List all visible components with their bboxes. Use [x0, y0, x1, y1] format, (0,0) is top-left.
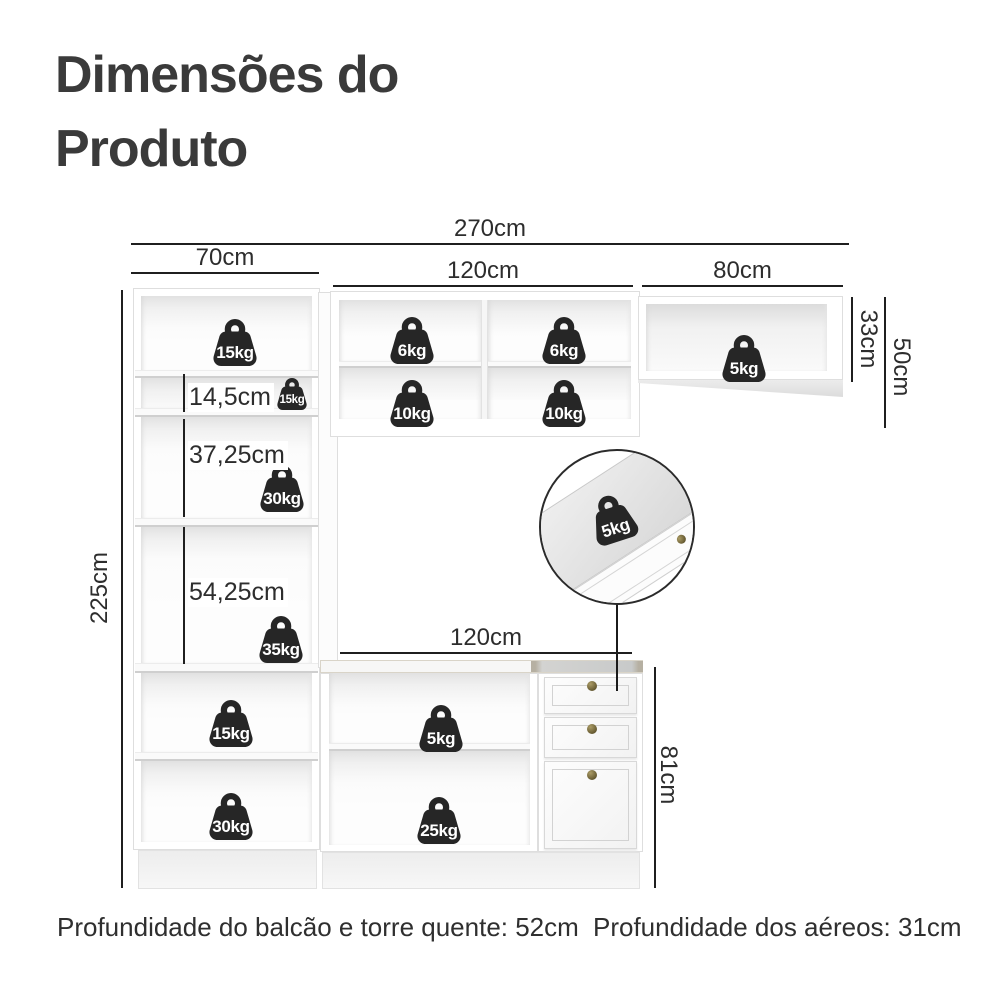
- dim-label-aerial-width: 120cm: [447, 257, 519, 285]
- weight-label: 10kg: [535, 404, 593, 424]
- dim-label-counter-width: 120cm: [450, 624, 522, 652]
- dim-label-tower-height: 225cm: [86, 552, 114, 624]
- weight-badge: 15kg: [272, 378, 312, 412]
- weight-badge: 5kg: [412, 705, 470, 755]
- dim-line-counter-width: 120cm: [340, 652, 632, 654]
- weight-label: 15kg: [206, 343, 264, 363]
- depth-note-aerials: Profundidade dos aéreos: 31cm: [593, 912, 962, 943]
- dim-line-tower-height: [121, 290, 123, 888]
- tower-shelf: [135, 370, 318, 378]
- weight-badge: 15kg: [202, 700, 260, 750]
- page-title-line1: Dimensões do: [55, 38, 398, 112]
- dim-label-shelf-gap-small: 14,5cm: [188, 383, 274, 412]
- dim-label-tower-width: 70cm: [196, 244, 255, 272]
- drawer-2-knob: [587, 724, 597, 734]
- weight-label: 15kg: [272, 394, 312, 406]
- dim-line-right-aerial-width: 80cm: [642, 285, 843, 287]
- counter-plinth: [322, 852, 640, 889]
- weight-label: 15kg: [202, 724, 260, 744]
- aerial-divider: [481, 300, 488, 419]
- weight-label: 6kg: [383, 341, 441, 361]
- weight-badge: 35kg: [252, 616, 310, 666]
- dim-label-shelf-gap-large: 54,25cm: [188, 578, 288, 607]
- weight-label: 5kg: [412, 729, 470, 749]
- page-title: Dimensões do Produto: [55, 38, 398, 186]
- dim-label-total-width: 270cm: [454, 215, 526, 243]
- weight-badge: 25kg: [410, 797, 468, 847]
- weight-label: 35kg: [252, 640, 310, 660]
- dim-label-counter-height: 81cm: [654, 746, 682, 805]
- dim-label-right-aerial-width: 80cm: [713, 257, 772, 285]
- weight-badge: 10kg: [535, 380, 593, 430]
- dim-tick-shelf-gap-mid: [183, 419, 185, 517]
- weight-badge: 30kg: [202, 793, 260, 843]
- weight-label: 5kg: [715, 359, 773, 379]
- countertop-stone-recess: [531, 661, 643, 672]
- depth-note-counter: Profundidade do balcão e torre quente: 5…: [57, 912, 579, 943]
- weight-badge: 15kg: [206, 319, 264, 369]
- tower-shelf: [135, 752, 318, 761]
- dim-tick-shelf-gap-large: [183, 527, 185, 664]
- drawer-3-knob: [587, 770, 597, 780]
- tower-shelf: [135, 518, 318, 527]
- dim-label-right-aerial-total-height: 50cm: [887, 338, 915, 397]
- drawer-detail-circle: 5kg: [539, 449, 695, 605]
- product-dimensions-infographic: Dimensões do Produto: [0, 0, 1000, 1000]
- weight-label: 6kg: [535, 341, 593, 361]
- detail-connector-line: [616, 604, 618, 691]
- dim-line-tower-width: 70cm: [131, 272, 319, 274]
- dim-label-right-aerial-height: 33cm: [854, 310, 882, 369]
- weight-label: 30kg: [202, 817, 260, 837]
- weight-badge: 5kg: [715, 335, 773, 385]
- dim-tick-shelf-gap-small: [183, 374, 185, 412]
- weight-label: 10kg: [383, 404, 441, 424]
- weight-badge: 30kg: [253, 465, 311, 515]
- weight-label: 25kg: [410, 821, 468, 841]
- weight-label: 30kg: [253, 489, 311, 509]
- dim-label-shelf-gap-mid: 37,25cm: [188, 441, 288, 470]
- weight-badge: 6kg: [535, 317, 593, 367]
- dim-line-aerial-width: 120cm: [333, 285, 633, 287]
- weight-badge: 6kg: [383, 317, 441, 367]
- dim-line-right-aerial-total-height: [884, 297, 886, 428]
- drawer-1-knob: [587, 681, 597, 691]
- weight-badge: 10kg: [383, 380, 441, 430]
- page-title-line2: Produto: [55, 112, 398, 186]
- dim-line-right-aerial-height: [851, 297, 853, 382]
- tower-plinth: [138, 850, 317, 889]
